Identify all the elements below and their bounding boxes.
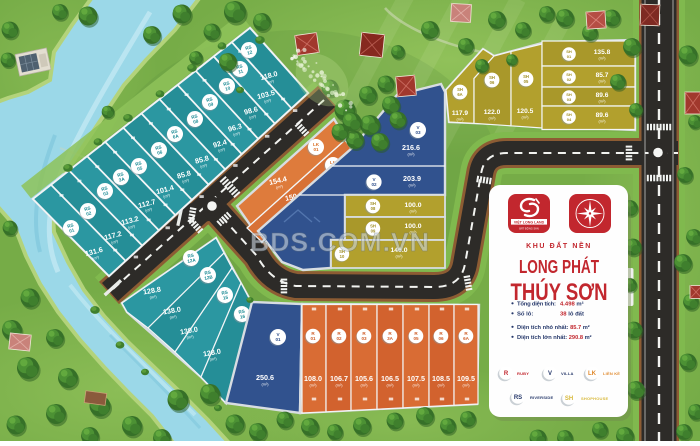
svg-text:216.6: 216.6 (402, 143, 420, 152)
svg-text:(m²): (m²) (599, 57, 607, 61)
svg-text:Diện tích lớn nhất: 290.8 m²: Diện tích lớn nhất: 290.8 m² (517, 334, 592, 341)
svg-text:(m²): (m²) (489, 117, 497, 121)
svg-text:04: 04 (567, 117, 572, 122)
svg-text:05: 05 (524, 79, 529, 84)
svg-text:(m²): (m²) (599, 80, 607, 84)
svg-text:(m²): (m²) (310, 384, 318, 388)
svg-text:02: 02 (371, 182, 377, 187)
svg-text:122.0: 122.0 (484, 109, 501, 116)
svg-text:106.7: 106.7 (330, 374, 348, 383)
svg-text:V: V (548, 371, 552, 377)
svg-text:03: 03 (567, 97, 572, 102)
svg-text:(m²): (m²) (438, 384, 446, 388)
svg-text:(m²): (m²) (413, 384, 421, 388)
svg-text:250.6: 250.6 (256, 373, 274, 382)
svg-text:01: 01 (567, 54, 572, 59)
svg-text:203.9: 203.9 (403, 174, 421, 183)
svg-text:135.8: 135.8 (594, 49, 611, 56)
svg-text:RUBY: RUBY (517, 371, 529, 376)
svg-text:03: 03 (361, 336, 367, 341)
svg-text:38 lô đất: 38 lô đất (560, 311, 584, 318)
svg-text:02: 02 (567, 77, 572, 82)
svg-text:(m²): (m²) (463, 384, 471, 388)
svg-text:106.5: 106.5 (381, 374, 399, 383)
svg-text:(m²): (m²) (262, 383, 270, 387)
svg-text:VILLA: VILLA (561, 371, 574, 376)
svg-text:06: 06 (438, 336, 444, 341)
svg-text:89.6: 89.6 (596, 92, 609, 99)
svg-text:VIỆT LONG LAND: VIỆT LONG LAND (514, 219, 545, 224)
svg-text:02: 02 (336, 336, 342, 341)
svg-text:4.498 m²: 4.498 m² (560, 301, 584, 308)
svg-text:105.6: 105.6 (355, 374, 373, 383)
svg-text:06: 06 (490, 80, 495, 85)
svg-text:Số lô:: Số lô: (517, 311, 533, 318)
svg-text:RS: RS (514, 395, 522, 401)
svg-text:Diện tích nhỏ nhất: 85.7 m²: Diện tích nhỏ nhất: 85.7 m² (517, 324, 590, 331)
svg-text:3A: 3A (387, 336, 394, 341)
svg-text:108.0: 108.0 (304, 374, 322, 383)
svg-text:LONG PHÁT: LONG PHÁT (519, 256, 600, 277)
svg-text:08: 08 (371, 206, 376, 211)
svg-text:(m²): (m²) (410, 210, 418, 214)
svg-text:120.5: 120.5 (517, 108, 534, 115)
svg-text:89.6: 89.6 (596, 112, 609, 119)
svg-text:109.5: 109.5 (457, 374, 475, 383)
svg-text:03: 03 (415, 130, 421, 135)
svg-text:117.9: 117.9 (452, 110, 468, 117)
svg-text:108.5: 108.5 (432, 374, 450, 383)
svg-text:85.7: 85.7 (596, 72, 609, 79)
svg-text:100.0: 100.0 (404, 202, 421, 209)
svg-text:(m²): (m²) (599, 100, 607, 104)
svg-text:Tổng diện tích:: Tổng diện tích: (517, 301, 556, 308)
svg-text:(m²): (m²) (522, 116, 530, 120)
svg-text:01: 01 (313, 147, 319, 152)
svg-text:(m²): (m²) (336, 384, 344, 388)
svg-text:LK: LK (588, 371, 597, 377)
svg-text:01: 01 (275, 337, 281, 342)
svg-text:SHOPHOUSE: SHOPHOUSE (581, 396, 608, 401)
svg-text:6A: 6A (463, 336, 470, 341)
svg-text:SH: SH (565, 396, 573, 402)
svg-text:01: 01 (310, 336, 316, 341)
svg-text:(m²): (m²) (409, 184, 417, 188)
svg-text:(m²): (m²) (408, 153, 416, 157)
svg-text:107.5: 107.5 (407, 374, 425, 383)
svg-text:05: 05 (413, 336, 419, 341)
svg-text:R: R (504, 371, 509, 377)
svg-text:(m²): (m²) (387, 384, 395, 388)
svg-text:RIVERSIDE: RIVERSIDE (530, 395, 553, 400)
svg-text:BDS.COM.VN: BDS.COM.VN (250, 227, 430, 257)
svg-text:6A: 6A (457, 92, 462, 97)
svg-text:(m²): (m²) (599, 120, 607, 124)
svg-text:LIỀN KỀ: LIỀN KỀ (603, 371, 620, 376)
svg-text:(m²): (m²) (457, 118, 465, 122)
svg-text:(m²): (m²) (361, 384, 369, 388)
